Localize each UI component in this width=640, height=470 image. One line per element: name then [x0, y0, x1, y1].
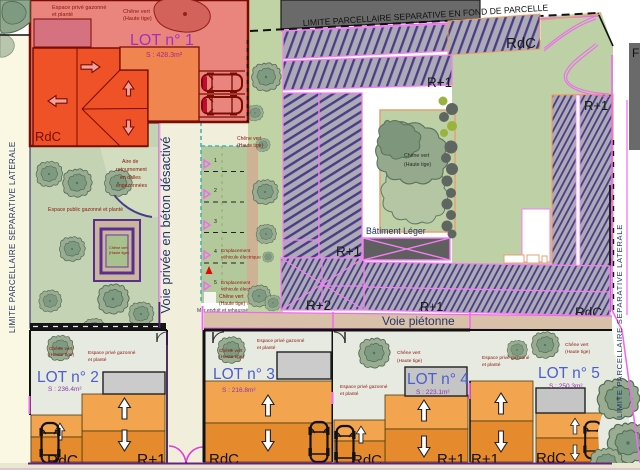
- svg-text:Aire de: Aire de: [122, 159, 139, 165]
- svg-text:Espace privé gazonné: Espace privé gazonné: [257, 338, 305, 344]
- svg-text:(Haute tige): (Haute tige): [404, 162, 431, 168]
- svg-text:(Haute tige): (Haute tige): [397, 358, 422, 364]
- svg-text:Chêne vert: Chêne vert: [49, 346, 73, 352]
- svg-text:(Haute tige): (Haute tige): [49, 352, 74, 358]
- svg-text:1: 1: [214, 158, 217, 164]
- svg-text:et planté: et planté: [52, 12, 73, 18]
- svg-text:Espace privé gazonné: Espace privé gazonné: [482, 355, 530, 361]
- svg-text:LOT n° 2: LOT n° 2: [37, 369, 99, 386]
- svg-text:R+1: R+1: [584, 98, 608, 113]
- svg-text:LOT n° 3: LOT n° 3: [213, 366, 275, 383]
- svg-text:(Haute tige): (Haute tige): [237, 143, 263, 149]
- svg-text:S : 428.3m²: S : 428.3m²: [146, 52, 183, 59]
- svg-text:4: 4: [214, 249, 217, 255]
- svg-text:RdC: RdC: [506, 35, 536, 52]
- svg-text:S : 223.1m²: S : 223.1m²: [416, 389, 450, 396]
- svg-text:LOT n° 5: LOT n° 5: [538, 365, 600, 382]
- svg-text:2: 2: [214, 188, 217, 194]
- svg-text:(Haute tige): (Haute tige): [565, 349, 590, 355]
- svg-text:LOT n° 4: LOT n° 4: [407, 371, 469, 388]
- svg-text:et planté: et planté: [340, 391, 359, 397]
- svg-text:Emplacement: Emplacement: [221, 280, 251, 286]
- svg-text:véhicule électrique: véhicule électrique: [221, 255, 261, 261]
- svg-text:R+1: R+1: [427, 75, 452, 90]
- svg-text:Espace privé gazonné: Espace privé gazonné: [52, 5, 106, 11]
- svg-text:Chêne vert: Chêne vert: [237, 136, 262, 142]
- svg-text:Chêne vert: Chêne vert: [565, 342, 589, 348]
- svg-text:et planté: et planté: [88, 357, 107, 363]
- svg-text:S : 250.3m²: S : 250.3m²: [549, 383, 583, 390]
- svg-text:Chêne vert: Chêne vert: [397, 350, 421, 356]
- svg-text:F: F: [632, 46, 639, 60]
- svg-text:Chêne vert: Chêne vert: [123, 9, 150, 15]
- svg-text:LOT n° 1: LOT n° 1: [130, 32, 194, 49]
- svg-text:RdC: RdC: [35, 129, 61, 144]
- svg-text:en dalles: en dalles: [120, 175, 141, 181]
- svg-text:(Haute tige): (Haute tige): [109, 251, 130, 255]
- svg-text:(Haute tige): (Haute tige): [123, 16, 152, 22]
- svg-text:S : 216.8m²: S : 216.8m²: [222, 387, 256, 394]
- svg-text:5: 5: [214, 280, 217, 286]
- svg-text:Voie privée en béton désactivé: Voie privée en béton désactivé: [158, 136, 173, 313]
- svg-text:Espace public gazonné et plant: Espace public gazonné et planté: [48, 207, 123, 213]
- svg-text:Espace privé gazonné: Espace privé gazonné: [88, 350, 136, 356]
- svg-text:Chêne vert: Chêne vert: [219, 348, 243, 354]
- svg-text:R+1: R+1: [336, 244, 361, 259]
- svg-text:Voie piétonne: Voie piétonne: [382, 314, 455, 328]
- svg-text:Bâtiment Léger: Bâtiment Léger: [366, 226, 426, 236]
- svg-text:Chêne vert: Chêne vert: [404, 153, 430, 159]
- svg-text:et planté: et planté: [482, 362, 501, 368]
- svg-text:Chêne vert: Chêne vert: [109, 246, 129, 250]
- svg-text:LIMITE PARCELLAIRE SEPARATIVE: LIMITE PARCELLAIRE SEPARATIVE LATERALE: [8, 141, 17, 333]
- svg-text:Emplacement: Emplacement: [221, 248, 251, 254]
- svg-text:3: 3: [214, 219, 217, 225]
- svg-text:LIMITE PARCELLAIRE SEPARATIVE: LIMITE PARCELLAIRE SEPARATIVE LATERALE: [615, 224, 624, 418]
- svg-text:R+2: R+2: [306, 298, 331, 313]
- svg-text:S : 236.4m²: S : 236.4m²: [48, 386, 82, 393]
- svg-text:R+1: R+1: [420, 300, 443, 314]
- svg-text:Espace privé gazonné: Espace privé gazonné: [340, 384, 388, 390]
- svg-text:retournement: retournement: [116, 167, 147, 173]
- svg-text:(Haute tige): (Haute tige): [219, 354, 244, 360]
- svg-text:Chêne vert: Chêne vert: [219, 294, 244, 300]
- svg-text:(Haute tige): (Haute tige): [219, 301, 245, 307]
- svg-text:et planté: et planté: [257, 345, 276, 351]
- svg-text:engazonnées: engazonnées: [116, 183, 148, 189]
